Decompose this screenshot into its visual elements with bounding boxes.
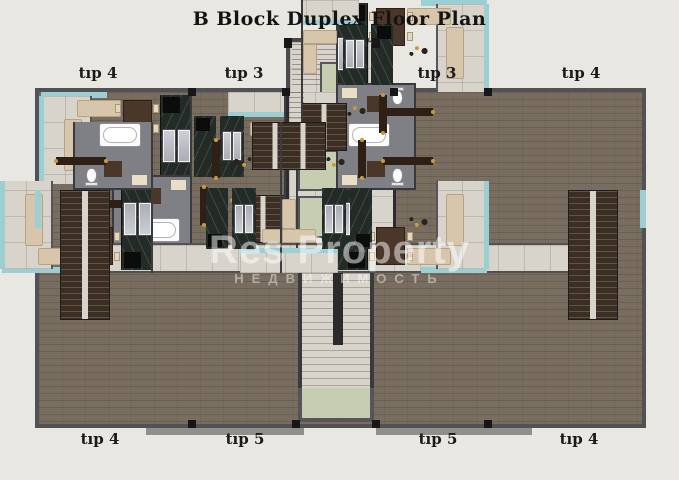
- stair-core-bottom: [298, 273, 374, 388]
- column: [282, 88, 290, 96]
- bathtub-basin: [103, 127, 137, 143]
- chair: [153, 104, 159, 113]
- kitchen-sink: [235, 205, 243, 233]
- balcony-accent: [39, 96, 44, 184]
- unit-type-label-bottom-2: tıp 5: [226, 430, 265, 448]
- cooktop: [196, 118, 210, 131]
- sofa: [303, 30, 337, 44]
- chair: [369, 252, 375, 261]
- sofa: [303, 44, 317, 74]
- cooktop: [124, 252, 141, 268]
- chair: [114, 232, 120, 241]
- bathroom-sink: [341, 174, 358, 186]
- column: [484, 88, 492, 96]
- column: [372, 38, 380, 48]
- sofa: [282, 199, 296, 229]
- balcony: [280, 253, 338, 273]
- bathtub: [99, 123, 141, 147]
- bathroom-sink: [341, 87, 358, 99]
- column: [188, 420, 196, 428]
- chair: [407, 32, 413, 41]
- tv-bench: [56, 157, 106, 165]
- column: [372, 420, 380, 428]
- stair-wall: [333, 273, 343, 345]
- tv-bench: [383, 157, 433, 165]
- chair: [114, 252, 120, 261]
- coffee-table: [232, 155, 254, 169]
- cooktop: [348, 252, 365, 268]
- column: [188, 88, 196, 96]
- cooktop: [163, 97, 180, 113]
- sofa: [407, 248, 451, 265]
- kitchen-sink: [325, 205, 333, 233]
- sofa: [446, 194, 464, 246]
- balcony: [228, 92, 286, 112]
- kitchen-sink: [223, 132, 231, 160]
- balcony-accent-right: [640, 190, 646, 228]
- kitchen-sink: [245, 205, 253, 233]
- unit-type-label-top-3: tıp 3: [418, 64, 457, 82]
- kitchen-sink: [139, 203, 151, 235]
- coffee-table: [407, 44, 429, 58]
- column: [390, 88, 398, 96]
- sofa: [282, 229, 316, 243]
- party-wall: [280, 122, 282, 273]
- column: [484, 420, 492, 428]
- floor-plan-page: B Block Duplex Floor Plan tıp 4 tıp 3 tı…: [0, 0, 679, 480]
- bathroom-sink: [170, 179, 187, 191]
- kitchen-sink: [356, 40, 364, 68]
- tv-bench: [383, 108, 433, 116]
- party-wall: [151, 122, 153, 273]
- dining-table: [376, 227, 405, 265]
- unit-type-label-bottom-3: tıp 5: [419, 430, 458, 448]
- duplex-stair-right: [568, 190, 618, 320]
- kitchen-sink: [335, 205, 343, 233]
- tv-bench: [212, 140, 220, 178]
- kitchen-sink: [178, 130, 190, 162]
- page-title: B Block Duplex Floor Plan: [0, 8, 679, 30]
- duplex-stair: [280, 122, 326, 170]
- unit-type-label-top-1: tıp 4: [79, 64, 118, 82]
- coffee-table: [324, 155, 346, 169]
- tv-bench: [358, 140, 366, 178]
- chair: [153, 124, 159, 133]
- tv-bench: [379, 95, 387, 133]
- cooktop: [208, 234, 222, 247]
- balcony-accent: [484, 181, 489, 269]
- kitchen-sink: [163, 130, 175, 162]
- entrance-lobby: [298, 388, 374, 422]
- unit-type-label-bottom-1: tıp 4: [81, 430, 120, 448]
- column: [284, 38, 292, 48]
- coffee-table: [345, 104, 367, 118]
- balcony-accent-left: [35, 190, 41, 228]
- unit-type-label-top-2: tıp 3: [225, 64, 264, 82]
- cooktop: [356, 234, 370, 247]
- chair: [115, 104, 121, 113]
- kitchen-sink: [124, 203, 136, 235]
- chair: [407, 232, 413, 241]
- coffee-table: [407, 215, 429, 229]
- chair: [407, 252, 413, 261]
- toilet: [86, 168, 97, 183]
- unit-type-label-top-4: tıp 4: [562, 64, 601, 82]
- bathroom-sink: [131, 174, 148, 186]
- bathroom-cabinet: [104, 161, 122, 177]
- duplex-stair-left: [60, 190, 110, 320]
- unit-type-label-bottom-4: tıp 4: [560, 430, 599, 448]
- toilet: [392, 168, 403, 183]
- column: [292, 420, 300, 428]
- kitchen-sink: [346, 40, 354, 68]
- balcony-accent: [0, 181, 5, 269]
